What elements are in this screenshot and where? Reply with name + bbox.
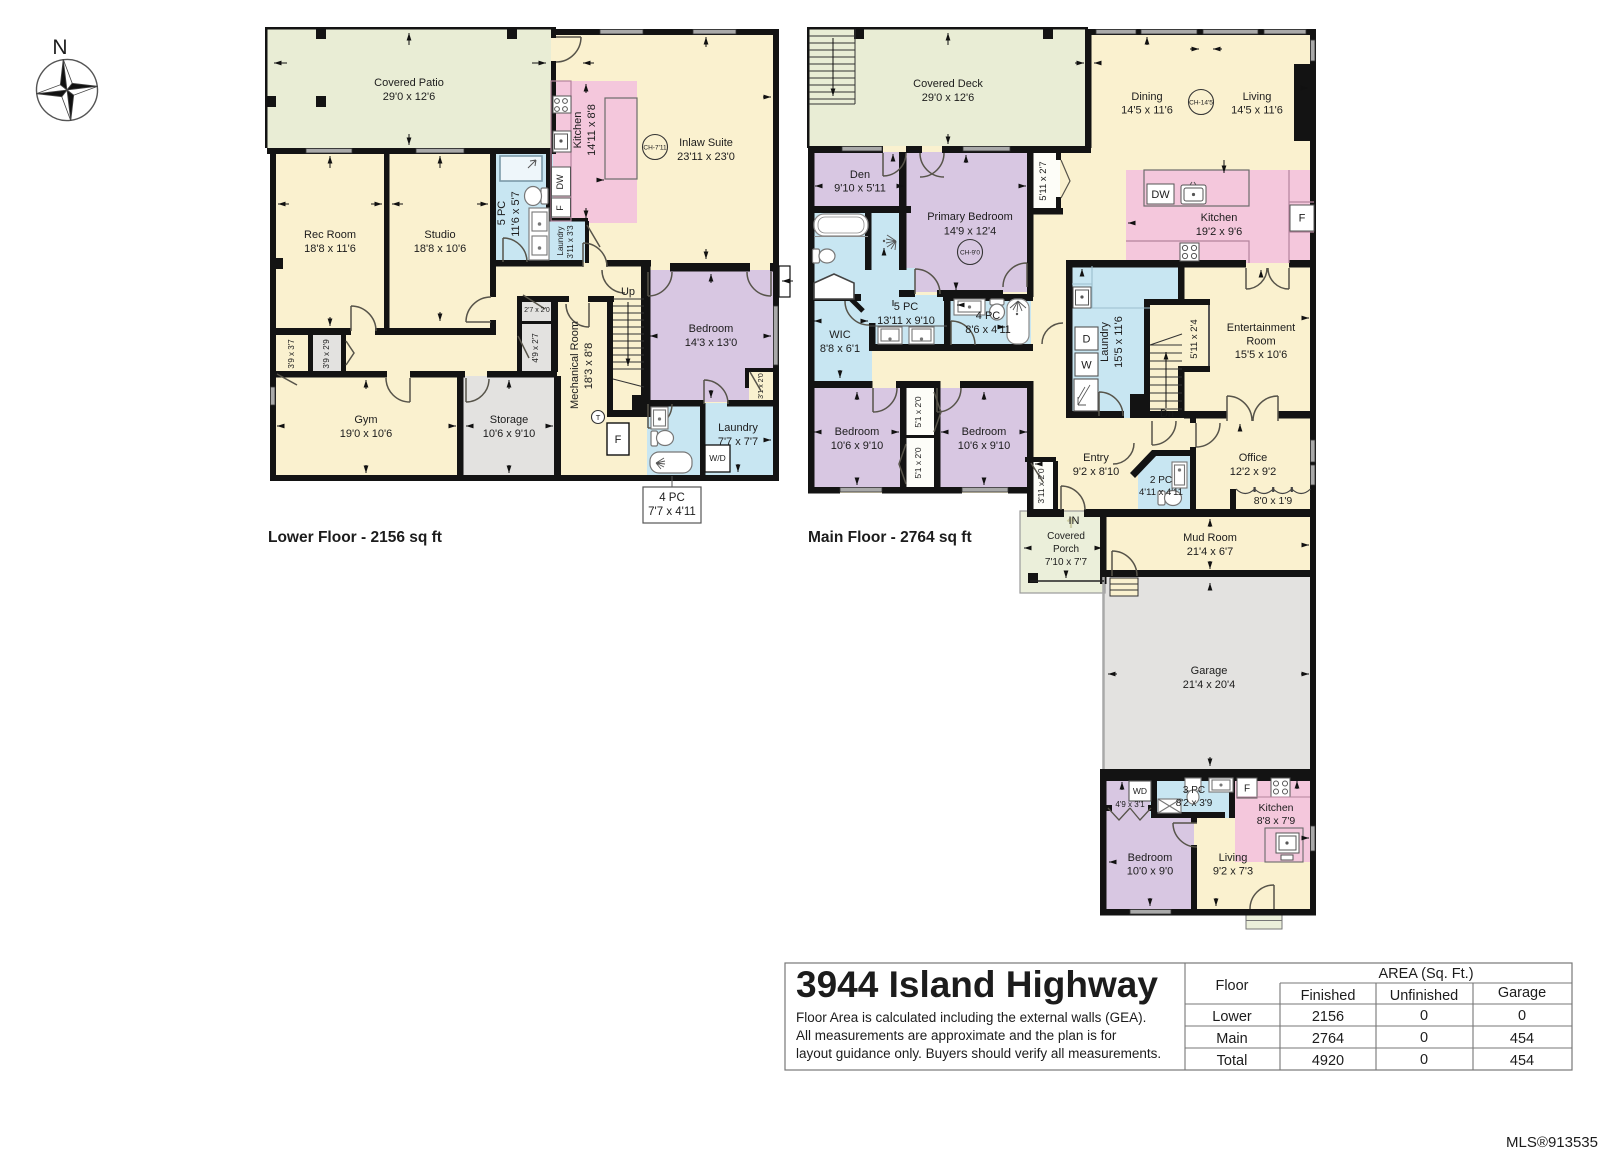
svg-text:Mechanical Room: Mechanical Room — [569, 321, 581, 409]
svg-text:8'8 x 6'1: 8'8 x 6'1 — [820, 343, 860, 355]
svg-text:DW: DW — [555, 174, 565, 189]
svg-text:10'6 x 9'10: 10'6 x 9'10 — [958, 440, 1011, 452]
svg-text:Bedroom: Bedroom — [689, 323, 734, 335]
svg-text:8'0 x 1'9: 8'0 x 1'9 — [1254, 495, 1293, 507]
svg-text:Kitchen: Kitchen — [1201, 212, 1238, 224]
svg-text:10'6 x 9'10: 10'6 x 9'10 — [483, 428, 536, 440]
svg-text:14'11 x 8'8: 14'11 x 8'8 — [586, 104, 598, 156]
svg-text:Living: Living — [1243, 91, 1272, 103]
svg-text:Primary Bedroom: Primary Bedroom — [927, 211, 1013, 223]
svg-text:Living: Living — [1219, 852, 1248, 864]
svg-text:3'1 x 2'0: 3'1 x 2'0 — [758, 373, 765, 399]
svg-text:5'1 x 2'0: 5'1 x 2'0 — [913, 396, 923, 427]
svg-text:Entertainment: Entertainment — [1227, 322, 1295, 334]
svg-text:Dining: Dining — [1131, 91, 1162, 103]
svg-text:4'9 x 3'1: 4'9 x 3'1 — [1115, 800, 1145, 809]
svg-text:Bedroom: Bedroom — [835, 426, 880, 438]
svg-text:All measurements are approxima: All measurements are approximate and the… — [796, 1028, 1117, 1043]
svg-text:19'2 x 9'6: 19'2 x 9'6 — [1196, 226, 1242, 238]
svg-text:14'5 x 11'6: 14'5 x 11'6 — [1121, 105, 1173, 117]
svg-text:15'5 x 11'6: 15'5 x 11'6 — [1113, 316, 1125, 368]
svg-text:Rec Room: Rec Room — [304, 229, 356, 241]
svg-text:12'2 x 9'2: 12'2 x 9'2 — [1230, 466, 1276, 478]
svg-text:3'11 x 3'3: 3'11 x 3'3 — [566, 225, 575, 259]
svg-text:Gym: Gym — [354, 414, 377, 426]
svg-text:7'7 x 4'11: 7'7 x 4'11 — [648, 506, 696, 518]
svg-text:Covered Patio: Covered Patio — [374, 77, 444, 89]
svg-text:15'5 x 10'6: 15'5 x 10'6 — [1235, 349, 1288, 361]
svg-text:4 PC: 4 PC — [659, 492, 685, 504]
svg-text:Kitchen: Kitchen — [572, 112, 584, 149]
svg-text:2'7 x 2'0: 2'7 x 2'0 — [524, 307, 550, 314]
svg-text:4 PC: 4 PC — [976, 310, 1001, 322]
svg-text:Office: Office — [1239, 452, 1268, 464]
svg-text:W/D: W/D — [709, 453, 726, 463]
svg-text:Porch: Porch — [1053, 544, 1079, 555]
svg-text:0: 0 — [1420, 1052, 1428, 1068]
svg-text:Garage: Garage — [1498, 985, 1546, 1001]
svg-text:N: N — [52, 36, 67, 59]
svg-text:WIC: WIC — [829, 329, 850, 341]
svg-text:21'4 x 6'7: 21'4 x 6'7 — [1187, 546, 1233, 558]
svg-text:Finished: Finished — [1301, 988, 1356, 1004]
svg-text:3'9 x 2'9: 3'9 x 2'9 — [322, 339, 331, 369]
svg-text:14'3 x 13'0: 14'3 x 13'0 — [685, 337, 738, 349]
svg-text:Up: Up — [621, 286, 635, 298]
svg-text:19'0 x 10'6: 19'0 x 10'6 — [340, 428, 393, 440]
svg-text:9'2 x 7'3: 9'2 x 7'3 — [1213, 866, 1253, 878]
svg-text:8'2 x 3'9: 8'2 x 3'9 — [1176, 798, 1213, 809]
svg-text:F: F — [555, 205, 565, 211]
svg-text:8'8 x 7'9: 8'8 x 7'9 — [1257, 815, 1296, 827]
svg-text:5 PC: 5 PC — [496, 201, 508, 226]
svg-text:8'6 x 4'11: 8'6 x 4'11 — [965, 324, 1011, 336]
svg-text:CH-7'11: CH-7'11 — [643, 145, 667, 152]
svg-text:4'9 x 2'7: 4'9 x 2'7 — [531, 333, 540, 363]
svg-text:7'10 x 7'7: 7'10 x 7'7 — [1045, 557, 1088, 568]
svg-text:Den: Den — [850, 169, 870, 181]
svg-text:21'4 x 20'4: 21'4 x 20'4 — [1183, 679, 1236, 691]
svg-text:Bedroom: Bedroom — [1128, 852, 1173, 864]
svg-text:454: 454 — [1510, 1053, 1534, 1069]
svg-text:Studio: Studio — [424, 229, 455, 241]
svg-text:Floor: Floor — [1215, 978, 1248, 994]
svg-text:5'1 x 2'0: 5'1 x 2'0 — [913, 447, 923, 478]
svg-text:18'3 x 8'8: 18'3 x 8'8 — [583, 343, 595, 389]
svg-text:T: T — [596, 413, 601, 422]
svg-text:CH-9'0: CH-9'0 — [960, 250, 980, 257]
svg-text:2764: 2764 — [1312, 1031, 1344, 1047]
svg-text:Main Floor - 2764 sq ft: Main Floor - 2764 sq ft — [808, 529, 972, 546]
svg-text:Laundry: Laundry — [556, 227, 565, 256]
svg-text:0: 0 — [1420, 1008, 1428, 1024]
svg-text:Inlaw Suite: Inlaw Suite — [679, 137, 733, 149]
svg-text:Storage: Storage — [490, 414, 529, 426]
svg-text:4'11 x 4'11: 4'11 x 4'11 — [1139, 487, 1183, 498]
svg-text:5'11 x 2'7: 5'11 x 2'7 — [1038, 161, 1049, 200]
svg-text:Garage: Garage — [1191, 665, 1228, 677]
svg-text:454: 454 — [1510, 1031, 1534, 1047]
svg-text:Lower: Lower — [1212, 1009, 1252, 1025]
svg-text:3'9 x 3'7: 3'9 x 3'7 — [287, 339, 296, 369]
svg-text:Lower Floor - 2156 sq ft: Lower Floor - 2156 sq ft — [268, 529, 442, 546]
svg-text:Floor Area is calculated inclu: Floor Area is calculated including the e… — [796, 1010, 1146, 1025]
svg-text:W: W — [1081, 360, 1092, 372]
svg-text:11'6 x 5'7: 11'6 x 5'7 — [510, 191, 522, 237]
svg-text:WD: WD — [1133, 786, 1147, 796]
svg-text:5'11 x 2'4: 5'11 x 2'4 — [1189, 319, 1200, 358]
svg-text:14'5 x 11'6: 14'5 x 11'6 — [1231, 105, 1283, 117]
svg-text:Covered Deck: Covered Deck — [913, 78, 983, 90]
svg-text:MLS®913535: MLS®913535 — [1506, 1134, 1598, 1151]
svg-text:4920: 4920 — [1312, 1053, 1344, 1069]
svg-text:9'10 x 5'11: 9'10 x 5'11 — [834, 183, 886, 195]
svg-text:Mud Room: Mud Room — [1183, 532, 1237, 544]
svg-text:29'0 x 12'6: 29'0 x 12'6 — [922, 92, 975, 104]
svg-text:9'2 x 8'10: 9'2 x 8'10 — [1073, 466, 1119, 478]
svg-text:Entry: Entry — [1083, 452, 1109, 464]
svg-text:7'7 x 7'7: 7'7 x 7'7 — [718, 436, 758, 448]
svg-text:D: D — [1083, 334, 1091, 346]
svg-text:F: F — [1244, 784, 1250, 795]
svg-text:Laundry: Laundry — [718, 422, 758, 434]
svg-text:29'0 x 12'6: 29'0 x 12'6 — [383, 91, 436, 103]
svg-text:F: F — [1299, 213, 1306, 225]
svg-text:Unfinished: Unfinished — [1390, 988, 1459, 1004]
svg-text:AREA (Sq. Ft.): AREA (Sq. Ft.) — [1378, 966, 1473, 982]
svg-text:layout guidance only. Buyers s: layout guidance only. Buyers should veri… — [796, 1046, 1161, 1061]
svg-text:Bedroom: Bedroom — [962, 426, 1007, 438]
svg-text:2 PC: 2 PC — [1150, 475, 1172, 486]
svg-text:18'8 x 11'6: 18'8 x 11'6 — [304, 243, 356, 255]
svg-text:2156: 2156 — [1312, 1009, 1344, 1025]
svg-text:23'11 x 23'0: 23'11 x 23'0 — [677, 151, 735, 163]
svg-text:3944 Island Highway: 3944 Island Highway — [796, 964, 1158, 1005]
svg-text:Dn: Dn — [1160, 408, 1174, 420]
svg-text:10'6 x 9'10: 10'6 x 9'10 — [831, 440, 884, 452]
svg-text:Main: Main — [1216, 1031, 1247, 1047]
svg-text:Kitchen: Kitchen — [1258, 802, 1293, 814]
svg-text:5 PC: 5 PC — [894, 301, 919, 313]
svg-text:IN: IN — [1069, 515, 1080, 527]
svg-text:Total: Total — [1217, 1053, 1248, 1069]
svg-text:DW: DW — [1151, 189, 1170, 201]
svg-text:Covered: Covered — [1047, 531, 1085, 542]
svg-text:CH-14'5: CH-14'5 — [1189, 100, 1213, 107]
svg-text:13'11 x 9'10: 13'11 x 9'10 — [877, 315, 935, 327]
svg-text:14'9 x 12'4: 14'9 x 12'4 — [944, 226, 997, 238]
svg-text:0: 0 — [1518, 1008, 1526, 1024]
svg-text:18'8 x 10'6: 18'8 x 10'6 — [414, 243, 467, 255]
svg-text:10'0 x 9'0: 10'0 x 9'0 — [1127, 866, 1173, 878]
svg-text:Laundry: Laundry — [1099, 322, 1111, 362]
svg-text:3 PC: 3 PC — [1183, 785, 1205, 796]
svg-text:0: 0 — [1420, 1030, 1428, 1046]
svg-text:Room: Room — [1246, 336, 1275, 348]
svg-text:3'11 x 2'0: 3'11 x 2'0 — [1036, 468, 1046, 503]
svg-text:F: F — [615, 434, 622, 446]
